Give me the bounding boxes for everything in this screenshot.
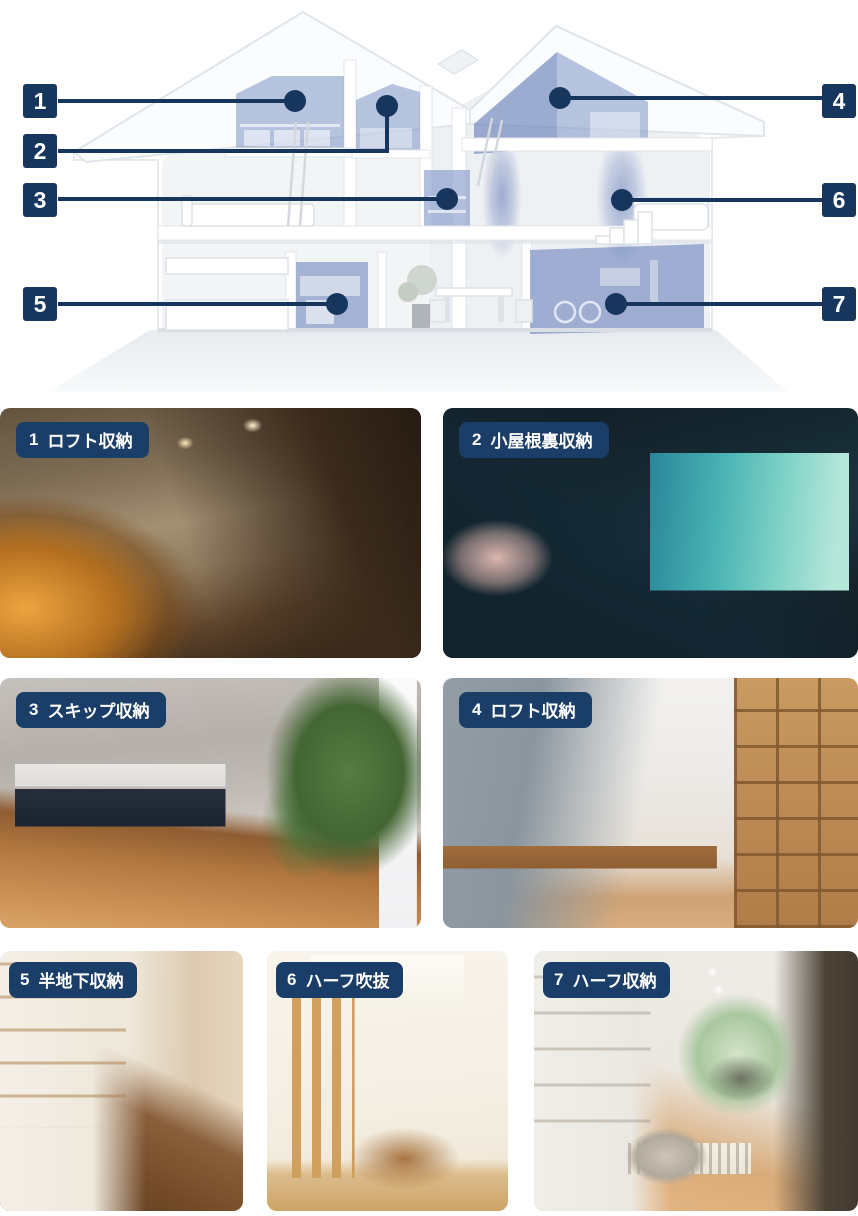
storage-card-7: 7ハーフ収納 (534, 951, 858, 1211)
diagram-marker-7: 7 (822, 287, 856, 321)
diagram-marker-2: 2 (23, 134, 57, 168)
card-number: 3 (29, 700, 38, 720)
diagram-marker-5: 5 (23, 287, 57, 321)
storage-card-2: 2小屋根裏収納 (443, 408, 858, 658)
diagram-marker-4: 4 (822, 84, 856, 118)
ground-shadow (48, 330, 788, 392)
card-title: ハーフ吹抜 (305, 967, 389, 992)
diagram-marker-1: 1 (23, 84, 57, 118)
card-label-4: 4ロフト収納 (459, 692, 592, 728)
house-cutaway-illustration (0, 0, 858, 400)
card-label-2: 2小屋根裏収納 (459, 422, 609, 458)
card-label-6: 6ハーフ吹抜 (276, 962, 403, 998)
card-number: 7 (554, 970, 563, 990)
diagram-marker-3: 3 (23, 183, 57, 217)
storage-card-6: 6ハーフ吹抜 (267, 951, 508, 1211)
storage-card-1: 1ロフト収納 (0, 408, 421, 658)
card-title: ロフト収納 (47, 427, 132, 452)
house-cutaway-diagram: 1 2 3 5 4 6 7 (0, 0, 858, 400)
card-label-1: 1ロフト収納 (16, 422, 149, 458)
skylight (438, 50, 478, 74)
card-number: 2 (472, 430, 481, 450)
diagram-marker-6: 6 (822, 183, 856, 217)
card-number: 1 (29, 430, 38, 450)
card-number: 6 (287, 970, 296, 990)
storage-ideas-page: 1 2 3 5 4 6 7 1ロフト収納 2小屋根裏収納 3スキップ収納 (0, 0, 858, 1216)
card-label-5: 5半地下収納 (9, 962, 137, 998)
storage-card-3: 3スキップ収納 (0, 678, 421, 928)
card-title: 半地下収納 (38, 967, 123, 992)
card-title: ロフト収納 (490, 697, 575, 722)
card-title: スキップ収納 (47, 697, 149, 722)
card-label-3: 3スキップ収納 (16, 692, 166, 728)
storage-card-4: 4ロフト収納 (443, 678, 858, 928)
card-title: ハーフ収納 (572, 967, 656, 992)
card-number: 4 (472, 700, 481, 720)
card-title: 小屋根裏収納 (490, 427, 592, 452)
card-label-7: 7ハーフ収納 (543, 962, 670, 998)
card-number: 5 (20, 970, 29, 990)
storage-card-5: 5半地下収納 (0, 951, 243, 1211)
